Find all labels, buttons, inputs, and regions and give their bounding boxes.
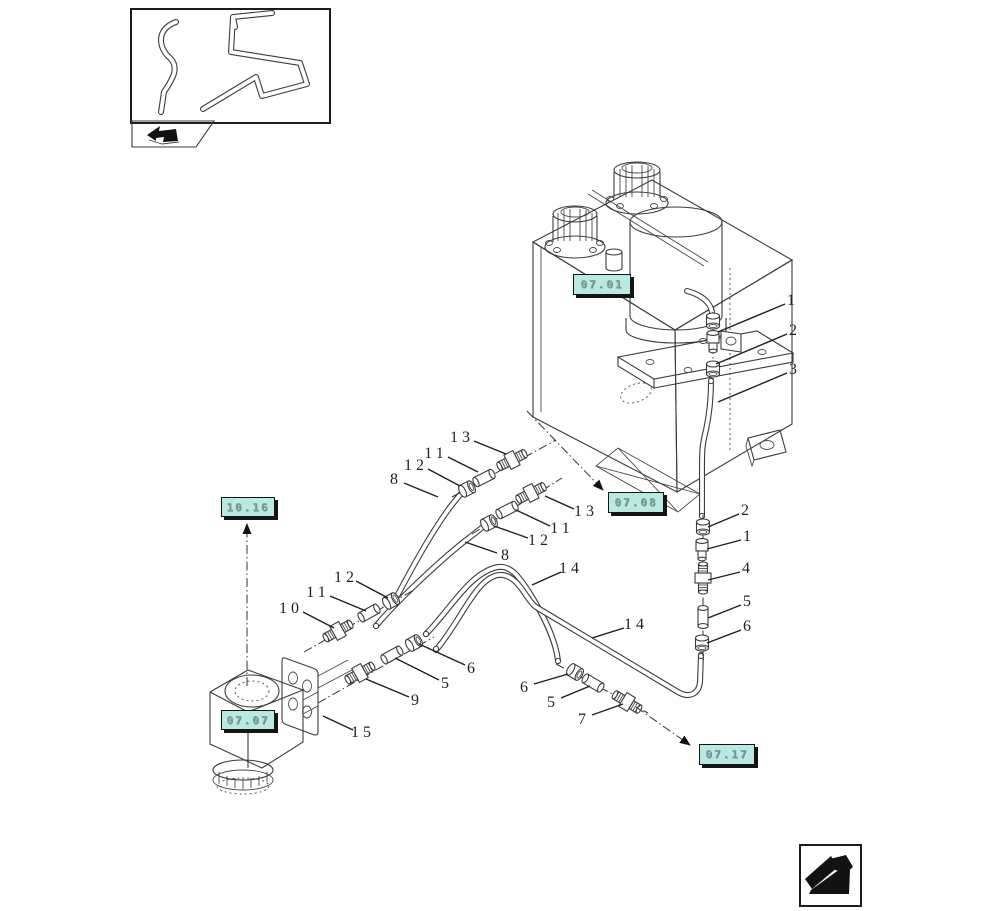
callout-label: 8 bbox=[390, 471, 402, 488]
callout-label: 12 bbox=[528, 532, 552, 549]
callout-label: 15 bbox=[351, 724, 375, 741]
ref-box-07-17[interactable]: 07.17 bbox=[699, 744, 755, 765]
callout-label: 8 bbox=[501, 547, 513, 564]
thumbnail-pipes bbox=[161, 13, 307, 112]
page-turn-arrow-icon bbox=[805, 855, 853, 894]
filler-cap-left bbox=[545, 206, 605, 258]
callout-label: 5 bbox=[743, 593, 755, 610]
callout-label: 2 bbox=[789, 322, 801, 339]
ref-box-07-08[interactable]: 07.08 bbox=[608, 492, 664, 513]
technical-line-art: 1 2 3 2 1 4 5 6 13 11 12 8 13 11 12 8 14… bbox=[0, 0, 992, 911]
fittings bbox=[320, 313, 741, 717]
callout-label: 9 bbox=[411, 692, 423, 709]
callout-label: 11 bbox=[306, 584, 329, 601]
callout-label: 6 bbox=[743, 618, 755, 635]
return-arrow-icon bbox=[147, 126, 178, 142]
ref-box-10-16[interactable]: 10.16 bbox=[221, 497, 275, 517]
callout-label: 6 bbox=[520, 679, 532, 696]
callout-label: 12 bbox=[334, 569, 358, 586]
callout-label: 4 bbox=[742, 560, 754, 577]
callout-label: 14 bbox=[624, 616, 648, 633]
return-tab[interactable] bbox=[132, 121, 214, 147]
callout-label: 3 bbox=[789, 361, 801, 378]
ref-box-07-07[interactable]: 07.07 bbox=[221, 710, 275, 730]
reservoir-tank bbox=[533, 180, 792, 512]
diagram-page: 1 2 3 2 1 4 5 6 13 11 12 8 13 11 12 8 14… bbox=[0, 0, 992, 911]
callout-label: 1 bbox=[787, 292, 799, 309]
callout-label: 12 bbox=[404, 457, 428, 474]
callout-label: 13 bbox=[574, 503, 598, 520]
callout-label: 2 bbox=[741, 502, 753, 519]
callout-label: 11 bbox=[550, 520, 573, 537]
callout-label: 6 bbox=[467, 660, 479, 677]
callout-label: 10 bbox=[279, 600, 303, 617]
callout-label: 7 bbox=[578, 711, 590, 728]
ref-box-07-01[interactable]: 07.01 bbox=[573, 274, 631, 295]
callout-label: 5 bbox=[441, 675, 453, 692]
callout-label: 14 bbox=[559, 560, 583, 577]
callout-label: 1 bbox=[743, 528, 755, 545]
callout-label: 13 bbox=[450, 429, 474, 446]
callout-label: 5 bbox=[547, 694, 559, 711]
